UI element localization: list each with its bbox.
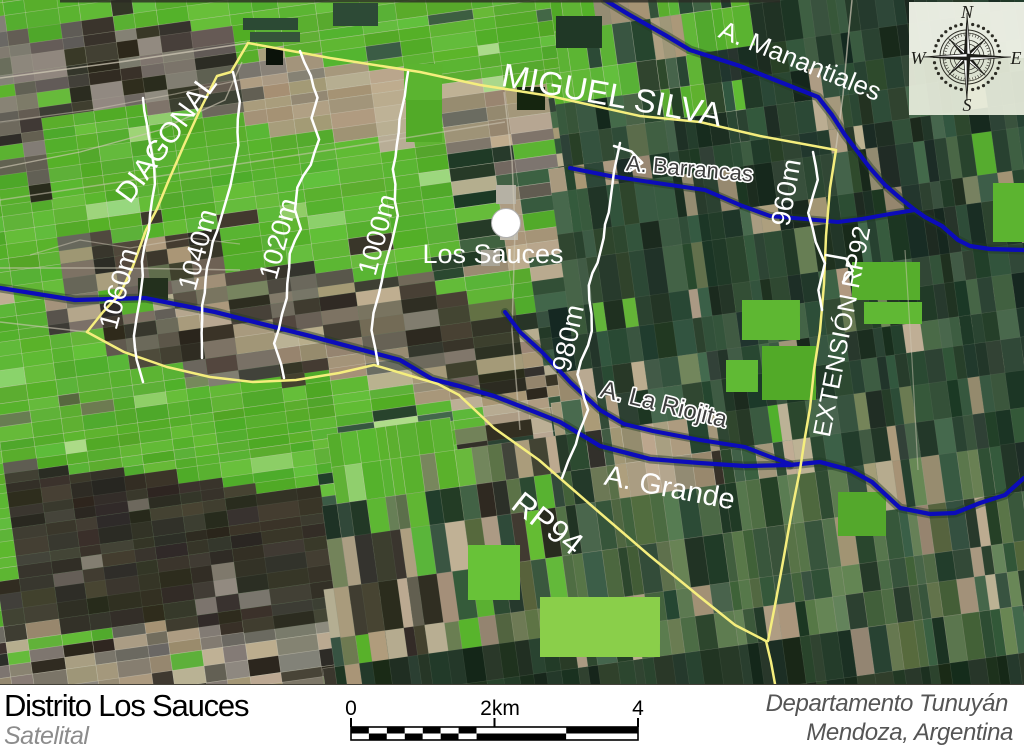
svg-text:Los Sauces: Los Sauces: [422, 239, 563, 269]
svg-text:4: 4: [632, 697, 644, 720]
svg-text:E: E: [1010, 48, 1022, 68]
svg-text:N: N: [960, 2, 974, 22]
svg-text:Satelital: Satelital: [4, 722, 90, 750]
svg-text:S: S: [963, 95, 972, 115]
svg-text:Mendoza, Argentina: Mendoza, Argentina: [806, 719, 1013, 746]
svg-text:W: W: [911, 48, 928, 68]
svg-text:Distrito Los Sauces: Distrito Los Sauces: [4, 688, 249, 723]
svg-text:0: 0: [345, 697, 357, 720]
svg-text:2km: 2km: [480, 697, 520, 720]
svg-text:Departamento Tunuyán: Departamento Tunuyán: [766, 690, 1008, 717]
